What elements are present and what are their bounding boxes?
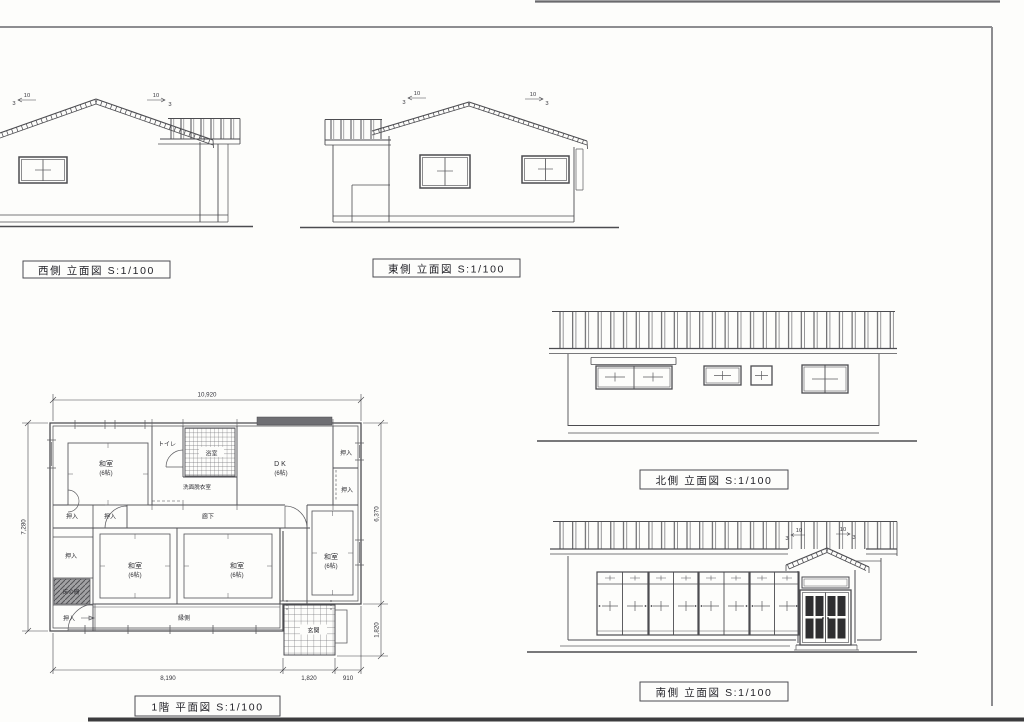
dim-bottom-main: 8,190 xyxy=(160,675,176,682)
closet-label: 押入 xyxy=(63,615,75,623)
porch-gable-roof xyxy=(786,548,869,573)
closet-label: 押入 xyxy=(340,449,352,457)
west-elevation-title-text: 西側 立面図 S:1/100 xyxy=(38,264,155,277)
room-label-tokonoma: 床の間 xyxy=(63,588,80,596)
dim-genkan-depth: 1,820 xyxy=(374,622,381,638)
slope-rise: 10 xyxy=(530,92,536,98)
south-elevation: 10 3 10 3 南側 立面図 S:1/100 xyxy=(527,522,917,702)
dim-overall-width: 10,920 xyxy=(198,392,217,399)
roof-battens xyxy=(552,312,895,348)
room-label-dk: DK xyxy=(274,461,288,468)
south-elevation-title: 南側 立面図 S:1/100 xyxy=(640,682,788,701)
room-label-toilet: トイレ xyxy=(158,442,176,448)
parapet-battens xyxy=(325,120,382,139)
parapet-battens xyxy=(168,119,240,139)
slope-run: 3 xyxy=(168,102,171,108)
room-size-washitsu: (6帖) xyxy=(324,562,337,570)
dim-bottom-step: 910 xyxy=(343,675,354,682)
west-elevation: 10 3 10 3 西側 立面図 S:1/100 xyxy=(0,93,253,278)
dim-bottom-genkan: 1,820 xyxy=(301,675,317,682)
room-size-washitsu: (6帖) xyxy=(99,469,112,477)
floor-plan-title: 1階 平面図 S:1/100 xyxy=(135,696,280,716)
window-bay xyxy=(699,572,749,635)
window xyxy=(802,365,848,393)
window xyxy=(751,366,772,385)
floor-plan: 玄関 xyxy=(21,392,389,717)
room-size-washitsu: (6帖) xyxy=(128,571,141,579)
scan-edge-bottom xyxy=(88,718,1024,722)
window xyxy=(420,155,470,188)
slope-rise: 10 xyxy=(840,527,846,533)
architectural-drawing-svg: 10 3 10 3 西側 立面図 S:1/100 xyxy=(0,0,1024,722)
window-bay xyxy=(597,572,648,635)
slope-marker: 10 3 xyxy=(402,91,426,106)
north-elevation-title-text: 北側 立面図 S:1/100 xyxy=(656,474,773,487)
window-bay xyxy=(750,572,799,635)
kitchen-counter xyxy=(257,417,332,425)
room-label-genkan: 玄関 xyxy=(307,627,319,635)
west-elevation-title: 西側 立面図 S:1/100 xyxy=(23,261,170,278)
window xyxy=(591,358,676,390)
room-size-washitsu: (6帖) xyxy=(230,571,243,579)
east-elevation: 10 3 10 3 東側 立面図 S:1/100 xyxy=(300,91,619,277)
south-elevation-title-text: 南側 立面図 S:1/100 xyxy=(656,686,773,699)
east-elevation-title: 東側 立面図 S:1/100 xyxy=(373,259,520,277)
closet-label: 押入 xyxy=(341,486,353,494)
tokonoma-area: 床の間 xyxy=(54,579,90,604)
room-size-dk: (6帖) xyxy=(274,469,287,477)
slope-rise: 10 xyxy=(24,93,30,99)
sheet-border xyxy=(0,2,1024,722)
floor-plan-title-text: 1階 平面図 S:1/100 xyxy=(151,702,263,714)
room-label-corridor: 廊下 xyxy=(202,513,214,521)
room-label-washroom: 洗面脱衣室 xyxy=(183,483,211,491)
slope-run: 3 xyxy=(12,101,15,107)
slope-run: 3 xyxy=(785,536,788,542)
entrance-double-door xyxy=(800,590,851,645)
room-label-washitsu: 和室 xyxy=(324,552,338,561)
genkan-porch: 玄関 xyxy=(284,600,347,655)
slope-run: 3 xyxy=(402,100,405,106)
room-label-washitsu: 和室 xyxy=(230,561,244,570)
east-elevation-title-text: 東側 立面図 S:1/100 xyxy=(388,263,505,276)
closet-label: 押入 xyxy=(65,552,77,560)
slope-marker: 10 3 xyxy=(525,92,549,107)
north-elevation-title: 北側 立面図 S:1/100 xyxy=(640,470,788,489)
entrance-porch xyxy=(794,570,859,650)
entrance-transom xyxy=(802,577,849,588)
dim-right-depth: 6,370 xyxy=(374,506,381,522)
room-label-bath: 浴室 xyxy=(205,450,217,458)
closet-label: 押入 xyxy=(104,513,116,521)
slope-marker: 10 3 xyxy=(147,93,172,108)
window xyxy=(19,157,67,183)
room-label-washitsu: 和室 xyxy=(128,561,142,570)
slope-marker: 10 3 xyxy=(12,93,36,107)
room-label-engawa: 縁側 xyxy=(178,614,190,622)
bathroom-area: 浴室 xyxy=(185,428,235,476)
dim-left-depth: 7,280 xyxy=(21,519,28,535)
slope-rise: 10 xyxy=(796,528,802,534)
room-label-washitsu: 和室 xyxy=(99,459,113,468)
slope-run: 3 xyxy=(852,535,855,541)
drawing-sheet: 10 3 10 3 西側 立面図 S:1/100 xyxy=(0,0,1024,722)
window-bay xyxy=(649,572,698,635)
north-elevation: 北側 立面図 S:1/100 xyxy=(537,312,917,490)
slope-rise: 10 xyxy=(153,93,159,99)
window xyxy=(704,366,741,385)
window xyxy=(522,156,569,183)
closet-label: 押入 xyxy=(66,513,78,521)
slope-rise: 10 xyxy=(414,91,420,97)
slope-run: 3 xyxy=(545,101,548,107)
